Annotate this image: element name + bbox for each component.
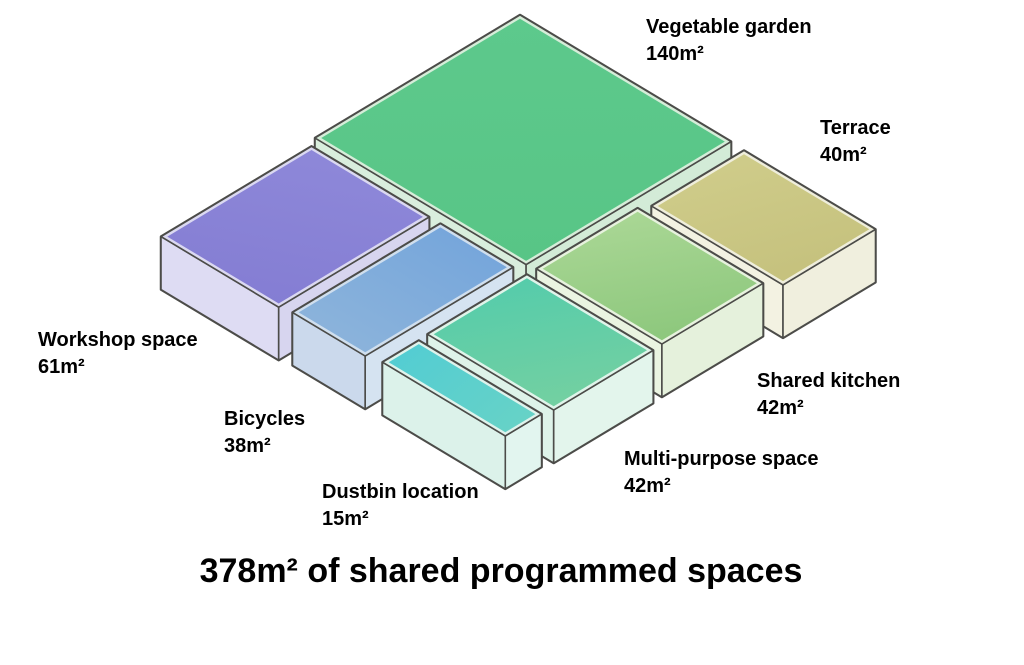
- label-area: 42m²: [624, 473, 818, 500]
- diagram-title: 378m² of shared programmed spaces: [200, 551, 803, 591]
- label-area: 40m²: [820, 142, 891, 169]
- label-area: 15m²: [322, 506, 479, 533]
- label-terrace: Terrace40m²: [820, 115, 891, 169]
- label-dustbin-location: Dustbin location15m²: [322, 479, 479, 533]
- label-name: Terrace: [820, 115, 891, 142]
- label-area: 140m²: [646, 41, 812, 68]
- label-name: Multi-purpose space: [624, 446, 818, 473]
- label-area: 38m²: [224, 433, 305, 460]
- label-name: Workshop space: [38, 327, 198, 354]
- label-area: 42m²: [757, 395, 900, 422]
- label-vegetable-garden: Vegetable garden140m²: [646, 14, 812, 68]
- label-multi-purpose-space: Multi-purpose space42m²: [624, 446, 818, 500]
- label-bicycles: Bicycles38m²: [224, 406, 305, 460]
- label-area: 61m²: [38, 354, 198, 381]
- infographic-stage: Vegetable garden140m²Workshop space61m²T…: [0, 0, 1024, 665]
- label-name: Shared kitchen: [757, 368, 900, 395]
- label-name: Dustbin location: [322, 479, 479, 506]
- label-workshop-space: Workshop space61m²: [38, 327, 198, 381]
- label-shared-kitchen: Shared kitchen42m²: [757, 368, 900, 422]
- label-name: Bicycles: [224, 406, 305, 433]
- label-name: Vegetable garden: [646, 14, 812, 41]
